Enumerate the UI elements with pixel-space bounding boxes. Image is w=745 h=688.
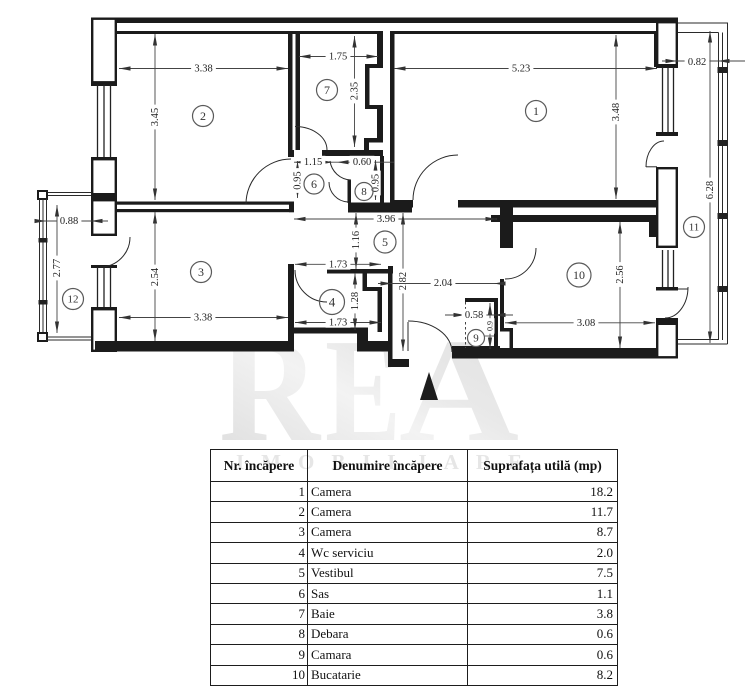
svg-text:2.04: 2.04	[434, 278, 453, 289]
svg-text:3.38: 3.38	[194, 313, 212, 324]
svg-text:2: 2	[200, 109, 206, 123]
svg-text:0.95: 0.95	[293, 171, 304, 189]
svg-text:10: 10	[573, 268, 585, 282]
svg-text:0.82: 0.82	[688, 57, 706, 68]
svg-text:6: 6	[311, 177, 317, 191]
svg-text:1: 1	[533, 104, 539, 118]
svg-text:1.28: 1.28	[350, 292, 361, 310]
svg-text:1.15: 1.15	[304, 157, 322, 168]
svg-text:3.45: 3.45	[150, 108, 161, 126]
svg-text:12: 12	[68, 294, 79, 306]
svg-text:2.56: 2.56	[615, 265, 626, 283]
svg-text:3.48: 3.48	[611, 103, 622, 121]
svg-text:3: 3	[198, 265, 204, 279]
svg-text:0.60: 0.60	[353, 157, 371, 168]
svg-text:8: 8	[361, 186, 367, 198]
svg-text:4: 4	[329, 294, 336, 309]
svg-text:9: 9	[473, 333, 479, 345]
svg-text:3.08: 3.08	[577, 318, 595, 329]
svg-text:3.96: 3.96	[377, 214, 395, 225]
svg-text:1.16: 1.16	[351, 231, 362, 249]
svg-text:2.54: 2.54	[150, 267, 161, 286]
svg-text:0.88: 0.88	[60, 216, 78, 227]
svg-text:0.58: 0.58	[465, 310, 483, 321]
svg-text:7: 7	[324, 83, 330, 97]
svg-text:1.73: 1.73	[329, 259, 347, 270]
svg-text:2.35: 2.35	[350, 82, 361, 100]
svg-text:3.38: 3.38	[194, 64, 212, 75]
svg-text:11: 11	[689, 222, 700, 234]
svg-text:0.9: 0.9	[486, 321, 495, 331]
svg-text:1.73: 1.73	[329, 318, 347, 329]
svg-text:5.23: 5.23	[512, 64, 530, 75]
svg-text:1.75: 1.75	[329, 52, 347, 63]
svg-text:2.82: 2.82	[398, 272, 409, 290]
svg-text:2.77: 2.77	[52, 259, 63, 277]
svg-text:6.28: 6.28	[705, 181, 716, 199]
svg-text:5: 5	[382, 235, 388, 249]
